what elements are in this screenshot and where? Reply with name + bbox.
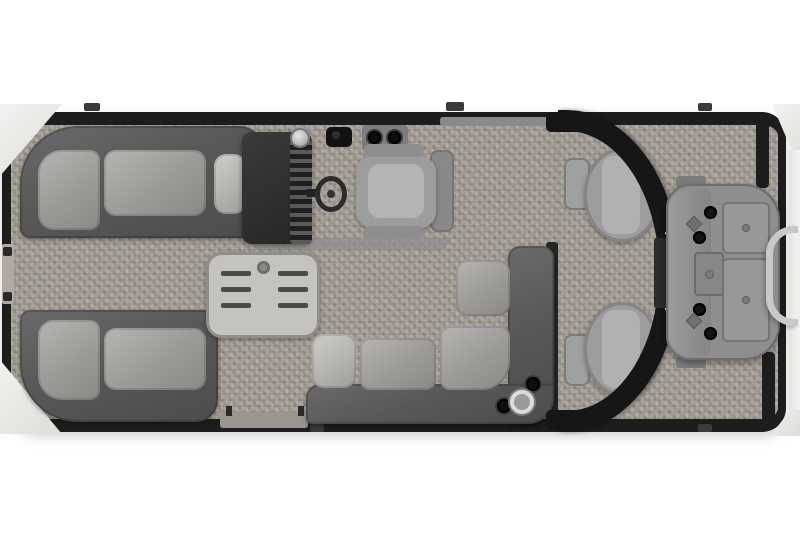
cleat — [698, 103, 712, 111]
cupholder — [497, 399, 511, 413]
cleat — [698, 424, 712, 432]
table-slat — [278, 303, 308, 308]
cleat — [84, 103, 100, 111]
l-lounge-corner-cushion — [440, 326, 510, 390]
l-lounge-armrest — [312, 334, 356, 388]
side-gate-latch-left — [226, 406, 232, 416]
cleat — [310, 424, 324, 432]
l-lounge-cushion — [360, 338, 436, 390]
side-gate-latch-right — [298, 406, 304, 416]
table-slat — [221, 271, 251, 276]
starboard-bow-cushion-curve — [38, 320, 100, 400]
table-slat — [221, 287, 251, 292]
cleat — [446, 102, 464, 111]
pontoon-floorplan: PREMIER — [0, 0, 800, 533]
helm-gauge — [292, 130, 308, 146]
motor-bolt — [704, 327, 717, 340]
cupholder — [388, 131, 401, 144]
motor-bolt — [693, 231, 706, 244]
side-gate-step — [220, 412, 308, 428]
bow-gate-latch-bottom — [3, 292, 12, 301]
l-lounge-upper-cushion — [456, 260, 510, 316]
captain-chair-armrest-top — [364, 144, 424, 157]
table-slat — [278, 271, 308, 276]
table-cupholder — [257, 261, 270, 274]
rail-post-bottom — [762, 352, 775, 422]
cupholder — [368, 131, 381, 144]
top-rail-trim — [440, 117, 556, 126]
stern-grab-handle — [766, 226, 798, 326]
motor-panel-dot — [742, 296, 750, 304]
motor-latch-dot — [705, 270, 714, 279]
throttle-lever — [332, 131, 340, 139]
table-slat — [278, 287, 308, 292]
table-slat — [221, 303, 251, 308]
motor-bolt — [704, 206, 717, 219]
port-bow-cushion — [104, 150, 206, 216]
motor-panel-dot — [742, 224, 750, 232]
rail-post-top — [756, 118, 769, 188]
stern-light — [510, 390, 534, 414]
starboard-bow-cushion — [104, 328, 206, 390]
captain-chair-armrest-bottom — [364, 226, 424, 239]
port-bow-cushion-curve — [38, 150, 100, 230]
steering-hub — [327, 190, 335, 198]
captain-chair-cushion — [368, 164, 424, 218]
cupholder — [526, 377, 540, 391]
bow-gate-latch-top — [3, 247, 12, 256]
